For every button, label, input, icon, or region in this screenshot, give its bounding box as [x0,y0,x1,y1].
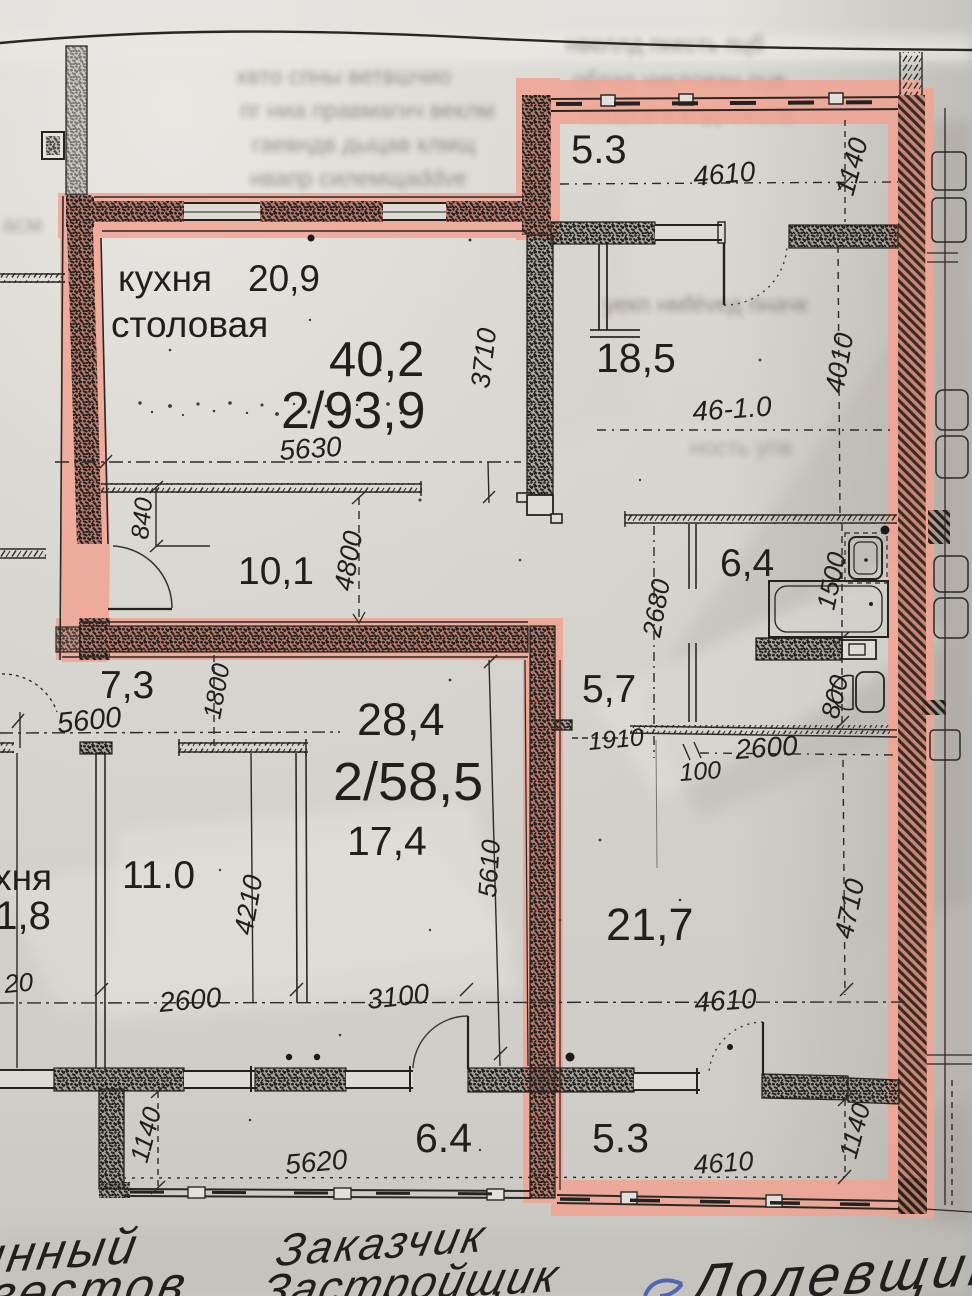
svg-text:40,2: 40,2 [329,333,424,387]
svg-text:2/58,5: 2/58,5 [333,752,483,812]
svg-text:6.4: 6.4 [415,1115,472,1161]
svg-text:кухня: кухня [118,258,212,299]
svg-text:4610: 4610 [692,156,757,192]
svg-text:асм: асм [2,211,42,237]
svg-text:7,3: 7,3 [100,664,154,707]
svg-text:пг ниа правмагнч веклм: пг ниа правмагнч веклм [240,97,494,123]
svg-text:хвто спны ветвшчио: хвто спны ветвшчио [236,63,451,89]
svg-text:6,4: 6,4 [720,542,774,585]
svg-text:1910: 1910 [587,723,645,756]
svg-text:28,4: 28,4 [357,694,445,745]
svg-text:5620: 5620 [284,1144,349,1180]
svg-text:11,8: 11,8 [0,894,51,938]
svg-text:5630: 5630 [278,431,343,466]
svg-text:840: 840 [126,496,158,541]
svg-text:2600: 2600 [157,982,223,1018]
svg-text:кухня: кухня [0,857,52,898]
svg-text:17,4: 17,4 [347,818,427,864]
svg-text:5.3: 5.3 [592,1115,649,1161]
svg-text:5610: 5610 [472,838,506,898]
svg-text:ность упв: ность упв [690,434,792,460]
svg-text:5.3: 5.3 [571,128,627,172]
svg-text:10,1: 10,1 [238,550,314,593]
svg-text:100: 100 [678,756,722,787]
svg-text:2600: 2600 [733,730,799,765]
svg-text:3100: 3100 [365,978,431,1015]
svg-text:4610: 4610 [693,983,758,1018]
svg-text:20: 20 [2,967,35,1000]
svg-text:2/93,9: 2/93,9 [281,382,426,440]
svg-text:столовая: столовая [111,304,268,345]
svg-text:5,7: 5,7 [582,668,636,711]
svg-text:уекп нмfévед пначк: уекп нмfévед пначк [604,291,809,317]
svg-text:11.0: 11.0 [122,854,195,897]
svg-text:нвапр силемщaddve: нвапр силемщaddve [250,165,467,191]
svg-text:18,5: 18,5 [596,335,676,381]
svg-text:46-1.0: 46-1.0 [691,390,773,426]
svg-text:гаевндв дыцав клмщ: гаевндв дыцав клмщ [252,131,475,157]
svg-text:20,9: 20,9 [248,258,320,299]
svg-text:5600: 5600 [55,701,123,740]
svg-text:21,7: 21,7 [606,899,694,950]
svg-text:4610: 4610 [692,1146,754,1180]
